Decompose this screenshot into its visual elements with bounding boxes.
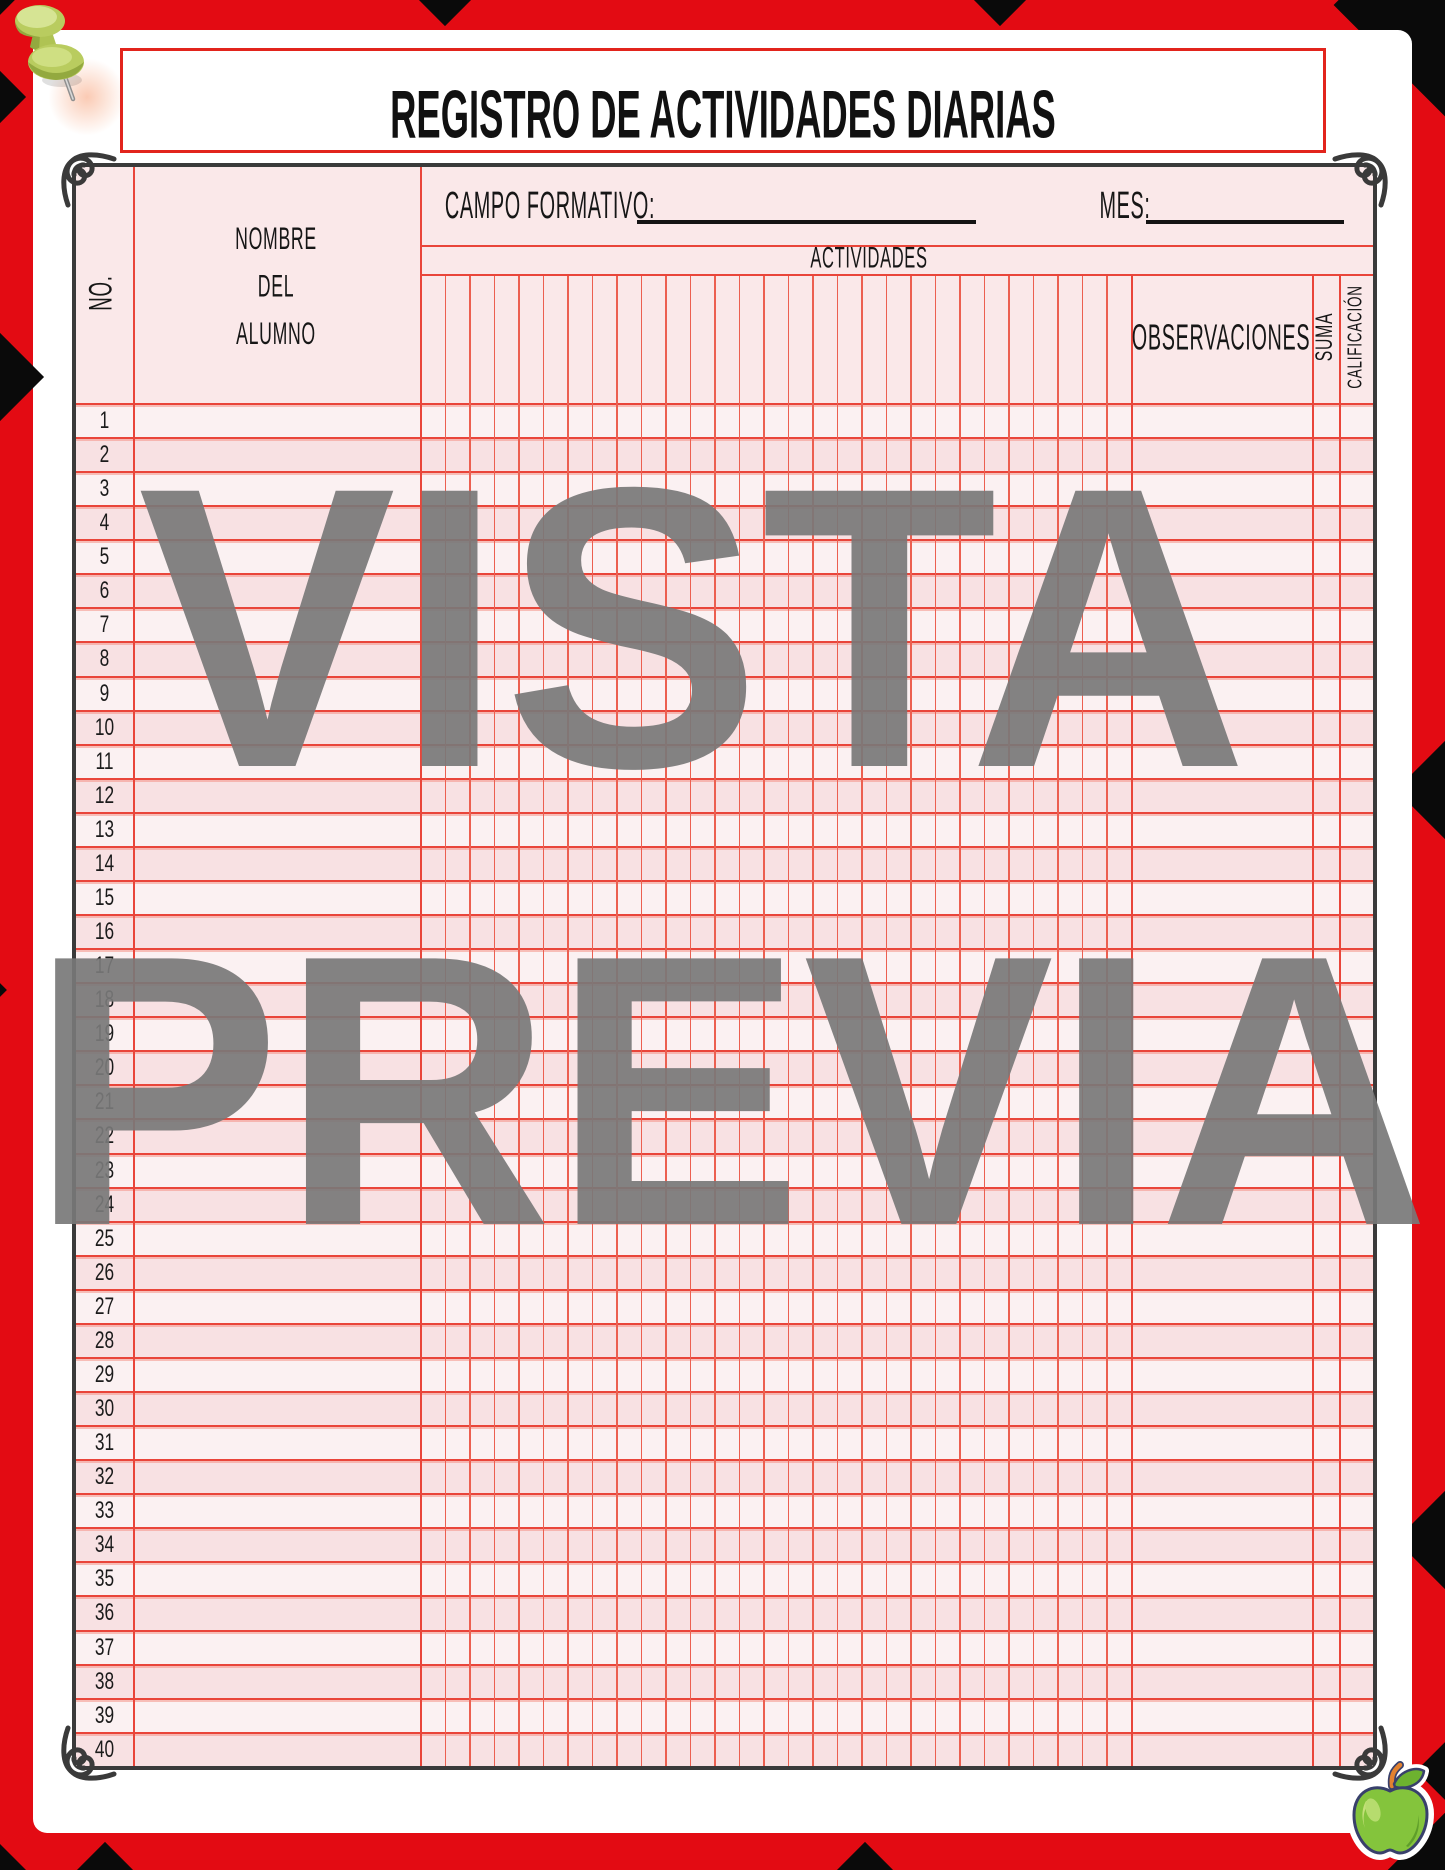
row-number: 27: [84, 1291, 125, 1323]
table-row: 24: [76, 1187, 1373, 1221]
row-number: 13: [84, 814, 125, 846]
grid-vline: [543, 274, 545, 1766]
grid-vline: [763, 274, 765, 1766]
grid-vline: [420, 167, 422, 1766]
row-number: 22: [84, 1120, 125, 1152]
corner-flourish-icon: [59, 1725, 117, 1783]
table-row: 2: [76, 437, 1373, 471]
grid-vline: [861, 274, 863, 1766]
table-row: 5: [76, 539, 1373, 573]
row-number: 15: [84, 882, 125, 914]
grid-vline: [567, 274, 569, 1766]
row-number: 25: [84, 1223, 125, 1255]
row-number: 1: [84, 405, 125, 437]
grid-vline: [910, 274, 912, 1766]
row-number: 20: [84, 1052, 125, 1084]
title-text-svg: REGISTRO DE ACTIVIDADES DIARIAS: [123, 51, 1323, 150]
black-diamond-ornament: [759, 1842, 971, 1870]
black-diamond-ornament: [339, 0, 551, 26]
mes-blank-line: [1146, 220, 1344, 224]
column-header-no: NO.: [77, 275, 126, 310]
row-number: 37: [84, 1632, 125, 1664]
table-row: 8: [76, 641, 1373, 675]
grid-vline: [133, 167, 135, 1766]
table-row: 20: [76, 1050, 1373, 1084]
black-diamond-ornament: [0, 1842, 211, 1870]
grid-vline: [592, 274, 594, 1766]
page-title: REGISTRO DE ACTIVIDADES DIARIAS: [390, 78, 1056, 150]
table-row: 15: [76, 880, 1373, 914]
row-number: 4: [84, 507, 125, 539]
table-row: 6: [76, 573, 1373, 607]
table-row: 28: [76, 1323, 1373, 1357]
table-row: 33: [76, 1493, 1373, 1527]
row-number: 26: [84, 1257, 125, 1289]
table-row: 19: [76, 1016, 1373, 1050]
pushpin-icon: [10, 0, 96, 108]
row-number: 6: [84, 575, 125, 607]
grid-vline: [935, 274, 937, 1766]
row-number: 18: [84, 984, 125, 1016]
row-number: 28: [84, 1325, 125, 1357]
row-number: 35: [84, 1563, 125, 1595]
grid-vline: [469, 274, 471, 1766]
campo-formativo-blank-line: [637, 220, 976, 224]
row-number: 33: [84, 1495, 125, 1527]
grid-vline: [665, 274, 667, 1766]
title-box: REGISTRO DE ACTIVIDADES DIARIAS: [120, 48, 1326, 153]
grid-vline: [837, 274, 839, 1766]
grid-vline: [739, 274, 741, 1766]
table-row: 31: [76, 1425, 1373, 1459]
row-number: 19: [84, 1018, 125, 1050]
grid-vline: [714, 274, 716, 1766]
table-row: 7: [76, 607, 1373, 641]
table-row: 11: [76, 744, 1373, 778]
table-row: 22: [76, 1118, 1373, 1152]
table-row: 27: [76, 1289, 1373, 1323]
grid-vline: [1008, 274, 1010, 1766]
table-row: 17: [76, 948, 1373, 982]
row-number: 11: [84, 746, 125, 778]
row-number: 34: [84, 1529, 125, 1561]
row-number: 17: [84, 950, 125, 982]
row-number: 9: [84, 678, 125, 710]
apple-icon: [1340, 1758, 1440, 1863]
column-header-actividades: ACTIVIDADES: [810, 237, 927, 281]
mes-label: MES:: [1100, 176, 1151, 234]
column-header-student-name: NOMBRE DEL ALUMNO: [235, 215, 317, 358]
grid-vline: [984, 274, 986, 1766]
campo-formativo-label: CAMPO FORMATIVO:: [445, 176, 655, 234]
row-number: 32: [84, 1461, 125, 1493]
row-number: 3: [84, 473, 125, 505]
table-row: 38: [76, 1664, 1373, 1698]
row-number: 16: [84, 916, 125, 948]
grid-vline: [959, 274, 961, 1766]
table-row: 26: [76, 1255, 1373, 1289]
table-row: 23: [76, 1153, 1373, 1187]
table-row: 1: [76, 403, 1373, 437]
row-number: 14: [84, 848, 125, 880]
row-number: 10: [84, 712, 125, 744]
table-row: 25: [76, 1221, 1373, 1255]
page-background: REGISTRO DE ACTIVIDADES DIARIAS 12345678…: [0, 0, 1445, 1870]
row-number: 36: [84, 1597, 125, 1629]
black-diamond-ornament: [894, 0, 1106, 26]
row-number: 38: [84, 1666, 125, 1698]
table-row: 29: [76, 1357, 1373, 1391]
table-row: 30: [76, 1391, 1373, 1425]
row-number: 31: [84, 1427, 125, 1459]
black-diamond-ornament: [0, 898, 7, 1082]
grid-vline: [1106, 274, 1108, 1766]
corner-flourish-icon: [59, 150, 117, 208]
table-row: 9: [76, 676, 1373, 710]
row-number: 30: [84, 1393, 125, 1425]
grid-vline: [1312, 274, 1314, 1766]
row-number: 8: [84, 643, 125, 675]
row-number: 12: [84, 780, 125, 812]
table-row: 35: [76, 1561, 1373, 1595]
row-number: 23: [84, 1155, 125, 1187]
grid-vline: [886, 274, 888, 1766]
table-row: 4: [76, 505, 1373, 539]
grid-vline: [1082, 274, 1084, 1766]
table-row: 12: [76, 778, 1373, 812]
table-row: 36: [76, 1595, 1373, 1629]
table-row: 40: [76, 1732, 1373, 1766]
table-row: 14: [76, 846, 1373, 880]
grid-vline: [518, 274, 520, 1766]
corner-flourish-icon: [1332, 150, 1390, 208]
table-row: 10: [76, 710, 1373, 744]
column-header-suma: SUMA: [1307, 313, 1343, 362]
table-grid: 1234567891011121314151617181920212223242…: [76, 167, 1373, 1766]
grid-vline: [445, 274, 447, 1766]
row-number: 7: [84, 609, 125, 641]
table-row: 3: [76, 471, 1373, 505]
row-number: 5: [84, 541, 125, 573]
table-row: 34: [76, 1527, 1373, 1561]
row-number: 24: [84, 1189, 125, 1221]
register-table: 1234567891011121314151617181920212223242…: [72, 163, 1377, 1770]
table-row: 32: [76, 1459, 1373, 1493]
column-header-calificacion: CALIFICACIÓN: [1339, 285, 1370, 389]
table-row: 37: [76, 1630, 1373, 1664]
row-number: 2: [84, 439, 125, 471]
table-row: 16: [76, 914, 1373, 948]
row-number: 29: [84, 1359, 125, 1391]
table-row: 18: [76, 982, 1373, 1016]
grid-vline: [812, 274, 814, 1766]
grid-vline: [1339, 274, 1341, 1766]
grid-vline: [788, 274, 790, 1766]
grid-vline: [1033, 274, 1035, 1766]
column-header-observaciones: OBSERVACIONES: [1132, 311, 1310, 365]
row-number: 21: [84, 1086, 125, 1118]
table-row: 39: [76, 1698, 1373, 1732]
grid-vline: [690, 274, 692, 1766]
grid-vline: [1131, 274, 1133, 1766]
table-row: 21: [76, 1084, 1373, 1118]
grid-vline: [1057, 274, 1059, 1766]
grid-vline: [641, 274, 643, 1766]
table-row: 13: [76, 812, 1373, 846]
grid-vline: [616, 274, 618, 1766]
grid-vline: [494, 274, 496, 1766]
